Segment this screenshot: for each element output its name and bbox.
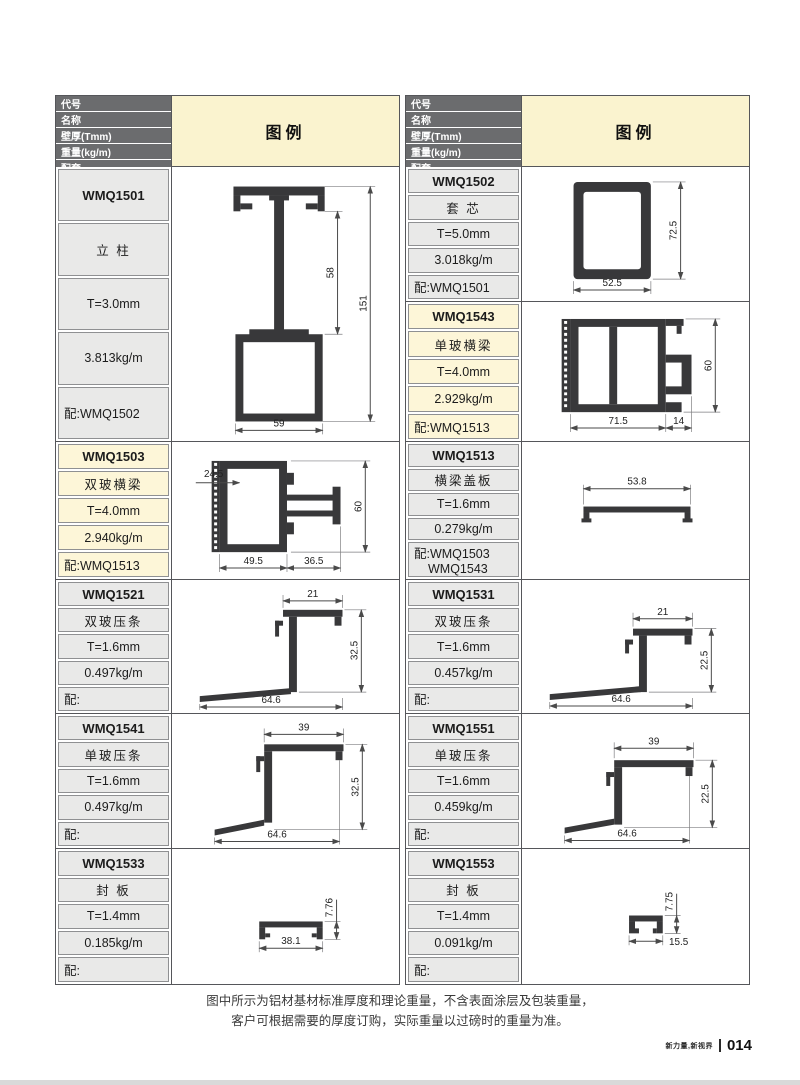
profile-weight: 2.929kg/m: [408, 386, 519, 411]
dim-label: 22.5: [699, 650, 710, 670]
profile-labels: WMQ1521 双玻压条 T=1.6mm 0.497kg/m 配:: [56, 580, 171, 713]
profile-drawing-wmq1501: 151 58 59: [171, 167, 399, 441]
dim-label: 21: [307, 589, 319, 600]
profile-weight: 3.018kg/m: [408, 248, 519, 272]
catalog-page: 代号 名称 壁厚(Tmm) 重量(kg/m) 配套 图例 WMQ1501 立 柱…: [0, 0, 800, 1085]
page-number: 014: [727, 1037, 752, 1054]
dim-label: 52.5: [603, 278, 623, 289]
profile-thickness: T=1.4mm: [408, 904, 519, 929]
profile-row-wmq1531: WMQ1531 双玻压条 T=1.6mm 0.457kg/m 配:: [406, 579, 749, 713]
profile-match: 配:: [58, 957, 169, 982]
profile-drawing-wmq1531: 21 22.5 64.6: [521, 580, 749, 713]
dim-label: 53.8: [627, 477, 647, 488]
header-thickness: 壁厚(Tmm): [56, 128, 171, 143]
header-code: 代号: [406, 96, 521, 111]
profile-labels: WMQ1503 双玻横梁 T=4.0mm 2.940kg/m 配:WMQ1513: [56, 442, 171, 579]
profile-drawing-wmq1513: 53.8: [521, 442, 749, 579]
profile-drawing-wmq1551: 39 22.5 64.6: [521, 714, 749, 848]
dim-label: 60: [353, 501, 364, 513]
footnote-line1: 图中所示为铝材基材标准厚度和理论重量，不含表面涂层及包装重量，: [0, 991, 800, 1011]
profile-code: WMQ1533: [58, 851, 169, 876]
profile-name: 封 板: [408, 878, 519, 903]
profile-row-wmq1501: WMQ1501 立 柱 T=3.0mm 3.813kg/m 配:WMQ1502: [56, 166, 399, 441]
footnote: 图中所示为铝材基材标准厚度和理论重量，不含表面涂层及包装重量， 客户可根据需要的…: [0, 991, 800, 1031]
footer-divider: [719, 1039, 721, 1052]
profile-table-right: 代号 名称 壁厚(Tmm) 重量(kg/m) 配套 图例 WMQ1502 套 芯…: [405, 95, 750, 985]
profile-labels: WMQ1533 封 板 T=1.4mm 0.185kg/m 配:: [56, 849, 171, 984]
profile-match: 配:WMQ1513: [408, 414, 519, 439]
profile-code: WMQ1531: [408, 582, 519, 606]
profile-name: 双玻压条: [58, 608, 169, 632]
dim-label: 14: [673, 416, 685, 427]
page-footer: 新力量,新视界 014: [666, 1037, 752, 1054]
profile-name: 立 柱: [58, 223, 169, 275]
footnote-line2: 客户可根据需要的厚度订购，实际重量以过磅时的重量为准。: [0, 1011, 800, 1031]
header-legend: 图例: [521, 96, 749, 166]
profile-name: 单玻压条: [408, 742, 519, 766]
dim-label: 59: [274, 418, 286, 429]
dim-label: 64.6: [267, 830, 287, 841]
dim-label: 32.5: [350, 777, 361, 797]
header-code: 代号: [56, 96, 171, 111]
dim-label: 151: [358, 295, 369, 312]
profile-match-line2: WMQ1543: [414, 562, 488, 576]
dim-label: 49.5: [244, 556, 264, 567]
header-name: 名称: [56, 112, 171, 127]
footer-slogan: 新力量,新视界: [666, 1041, 713, 1051]
profile-labels: WMQ1513 横梁盖板 T=1.6mm 0.279kg/m 配:WMQ1503…: [406, 442, 521, 579]
dim-label: 38.1: [281, 936, 301, 947]
profile-match: 配:WMQ1502: [58, 387, 169, 439]
profile-weight: 2.940kg/m: [58, 525, 169, 550]
profile-row-wmq1521: WMQ1521 双玻压条 T=1.6mm 0.497kg/m 配:: [56, 579, 399, 713]
dim-label: 71.5: [609, 416, 629, 427]
table-header: 代号 名称 壁厚(Tmm) 重量(kg/m) 配套 图例: [406, 96, 749, 166]
profile-code: WMQ1541: [58, 716, 169, 740]
profile-row-wmq1541: WMQ1541 单玻压条 T=1.6mm 0.497kg/m 配:: [56, 713, 399, 848]
profile-weight: 0.091kg/m: [408, 931, 519, 956]
profile-thickness: T=3.0mm: [58, 278, 169, 330]
profile-row-wmq1543: WMQ1543 单玻横梁 T=4.0mm 2.929kg/m 配:WMQ1513: [406, 301, 749, 441]
dim-label: 39: [298, 722, 310, 733]
profile-labels: WMQ1551 单玻压条 T=1.6mm 0.459kg/m 配:: [406, 714, 521, 848]
dim-label: 64.6: [617, 829, 637, 840]
profile-match: 配:: [58, 687, 169, 711]
profile-thickness: T=1.6mm: [408, 769, 519, 793]
profile-code: WMQ1503: [58, 444, 169, 469]
dim-label: 24.5: [204, 469, 224, 480]
profile-match-line1: 配:WMQ1503: [414, 543, 490, 562]
profile-labels: WMQ1541 单玻压条 T=1.6mm 0.497kg/m 配:: [56, 714, 171, 848]
profile-match: 配:: [58, 822, 169, 846]
profile-table-left: 代号 名称 壁厚(Tmm) 重量(kg/m) 配套 图例 WMQ1501 立 柱…: [55, 95, 400, 985]
table-header: 代号 名称 壁厚(Tmm) 重量(kg/m) 配套 图例: [56, 96, 399, 166]
profile-drawing-wmq1533: 7.76 38.1: [171, 849, 399, 984]
profile-labels: WMQ1553 封 板 T=1.4mm 0.091kg/m 配:: [406, 849, 521, 984]
profile-thickness: T=1.6mm: [408, 634, 519, 658]
profile-labels: WMQ1531 双玻压条 T=1.6mm 0.457kg/m 配:: [406, 580, 521, 713]
profile-thickness: T=4.0mm: [408, 359, 519, 384]
profile-drawing-wmq1521: 21 32.5 64.6: [171, 580, 399, 713]
profile-name: 单玻压条: [58, 742, 169, 766]
profile-weight: 0.497kg/m: [58, 661, 169, 685]
header-weight: 重量(kg/m): [406, 144, 521, 159]
profile-row-wmq1551: WMQ1551 单玻压条 T=1.6mm 0.459kg/m 配:: [406, 713, 749, 848]
profile-drawing-wmq1502: 72.5 52.5: [521, 167, 749, 301]
dim-label: 22.5: [700, 784, 711, 804]
profile-code: WMQ1513: [408, 444, 519, 467]
profile-row-wmq1553: WMQ1553 封 板 T=1.4mm 0.091kg/m 配:: [406, 848, 749, 984]
profile-labels: WMQ1501 立 柱 T=3.0mm 3.813kg/m 配:WMQ1502: [56, 167, 171, 441]
profile-row-wmq1533: WMQ1533 封 板 T=1.4mm 0.185kg/m 配:: [56, 848, 399, 984]
profile-row-wmq1513: WMQ1513 横梁盖板 T=1.6mm 0.279kg/m 配:WMQ1503…: [406, 441, 749, 579]
profile-code: WMQ1502: [408, 169, 519, 193]
header-legend: 图例: [171, 96, 399, 166]
profile-drawing-wmq1541: 39 32.5 64.6: [171, 714, 399, 848]
profile-thickness: T=1.6mm: [408, 493, 519, 516]
profile-row-wmq1502: WMQ1502 套 芯 T=5.0mm 3.018kg/m 配:WMQ1501 …: [406, 166, 749, 301]
profile-code: WMQ1543: [408, 304, 519, 329]
header-thickness: 壁厚(Tmm): [406, 128, 521, 143]
profile-weight: 0.457kg/m: [408, 661, 519, 685]
profile-name: 套 芯: [408, 195, 519, 219]
dim-label: 32.5: [349, 640, 360, 660]
profile-weight: 0.279kg/m: [408, 518, 519, 541]
profile-match: 配:: [408, 687, 519, 711]
profile-labels: WMQ1502 套 芯 T=5.0mm 3.018kg/m 配:WMQ1501: [406, 167, 521, 301]
dim-label: 64.6: [611, 694, 631, 705]
profile-match: 配:WMQ1501: [408, 275, 519, 299]
dim-label: 15.5: [669, 937, 689, 948]
profile-match: 配:: [408, 822, 519, 846]
profile-name: 单玻横梁: [408, 331, 519, 356]
profile-drawing-wmq1543: 60 71.5 14: [521, 302, 749, 441]
profile-name: 横梁盖板: [408, 469, 519, 492]
dim-label: 58: [326, 267, 337, 279]
dim-label: 21: [657, 607, 669, 618]
dim-label: 72.5: [669, 220, 680, 240]
profile-code: WMQ1553: [408, 851, 519, 876]
profile-thickness: T=5.0mm: [408, 222, 519, 246]
page-bottom-edge: [0, 1080, 800, 1085]
dim-label: 7.76: [325, 897, 336, 917]
profile-labels: WMQ1543 单玻横梁 T=4.0mm 2.929kg/m 配:WMQ1513: [406, 302, 521, 441]
dim-label: 60: [703, 360, 714, 372]
profile-match: 配:: [408, 957, 519, 982]
profile-match: 配:WMQ1503 WMQ1543: [408, 542, 519, 577]
profile-thickness: T=1.6mm: [58, 769, 169, 793]
header-label-column: 代号 名称 壁厚(Tmm) 重量(kg/m) 配套: [406, 96, 521, 166]
header-label-column: 代号 名称 壁厚(Tmm) 重量(kg/m) 配套: [56, 96, 171, 166]
profile-thickness: T=1.6mm: [58, 634, 169, 658]
dim-label: 7.75: [665, 892, 676, 912]
profile-row-wmq1503: WMQ1503 双玻横梁 T=4.0mm 2.940kg/m 配:WMQ1513: [56, 441, 399, 579]
profile-weight: 0.497kg/m: [58, 795, 169, 819]
profile-drawing-wmq1503: 24.5 60 49.5 36.5: [171, 442, 399, 579]
header-weight: 重量(kg/m): [56, 144, 171, 159]
dim-label: 64.6: [261, 695, 281, 706]
profile-thickness: T=4.0mm: [58, 498, 169, 523]
header-name: 名称: [406, 112, 521, 127]
profile-weight: 0.185kg/m: [58, 931, 169, 956]
profile-code: WMQ1551: [408, 716, 519, 740]
profile-tables: 代号 名称 壁厚(Tmm) 重量(kg/m) 配套 图例 WMQ1501 立 柱…: [55, 95, 750, 985]
profile-code: WMQ1501: [58, 169, 169, 221]
profile-match: 配:WMQ1513: [58, 552, 169, 577]
profile-drawing-wmq1553: 7.75 15.5: [521, 849, 749, 984]
dim-label: 36.5: [304, 556, 324, 567]
profile-name: 双玻横梁: [58, 471, 169, 496]
profile-name: 双玻压条: [408, 608, 519, 632]
profile-weight: 0.459kg/m: [408, 795, 519, 819]
profile-thickness: T=1.4mm: [58, 904, 169, 929]
dim-label: 39: [648, 736, 660, 747]
profile-code: WMQ1521: [58, 582, 169, 606]
profile-weight: 3.813kg/m: [58, 332, 169, 384]
profile-name: 封 板: [58, 878, 169, 903]
